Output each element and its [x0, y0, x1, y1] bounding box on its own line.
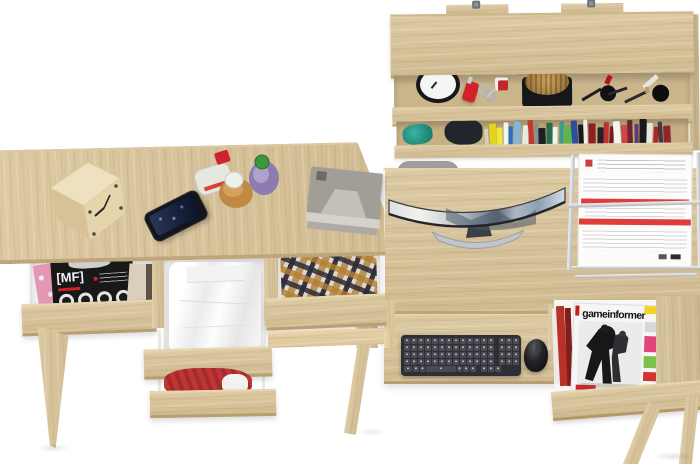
red-key-fob	[495, 77, 508, 90]
invoice-header-text	[597, 160, 685, 173]
keyboard-key	[506, 338, 512, 344]
keyboard-key	[467, 338, 473, 344]
wireless-keyboard	[401, 335, 521, 376]
mounting-hook-icon	[587, 0, 595, 8]
magazine-masthead: gameinformer	[582, 308, 645, 322]
invoice-paper	[578, 154, 693, 269]
keyboard-key	[446, 359, 452, 365]
clock-screw	[88, 210, 92, 214]
keyboard-key	[499, 338, 505, 344]
keyboard-key	[460, 352, 466, 358]
keyboard-key	[446, 338, 452, 344]
keyboard-key	[425, 359, 431, 365]
keyboard-key	[418, 359, 424, 365]
document-tray	[571, 146, 700, 282]
keyboard-key	[506, 359, 512, 365]
clock-screw	[92, 232, 96, 236]
keyboard-key	[457, 366, 462, 372]
organizer-display	[316, 171, 327, 181]
keyboard-key	[499, 352, 505, 358]
keyboard-key	[488, 352, 494, 358]
keyboard-key	[426, 366, 456, 372]
book-spine	[646, 123, 653, 145]
keyboard-key	[411, 359, 417, 365]
cube-clock	[44, 158, 128, 244]
keyboard-key	[453, 359, 459, 365]
keyboard-gap	[495, 338, 498, 344]
keyboard-key	[467, 359, 473, 365]
keyboard-key	[460, 345, 466, 351]
keyboard-key	[488, 345, 494, 351]
keyboard-key	[446, 352, 452, 358]
desk-leg-tapered	[34, 326, 74, 448]
keyboard-key	[481, 366, 487, 372]
mounting-hook-icon	[472, 1, 480, 9]
keyboard-key	[499, 345, 505, 351]
keyboard-key	[467, 352, 473, 358]
mf-cover-text-red	[58, 287, 80, 292]
keyboard-key	[463, 366, 469, 372]
magazine-cover-photo	[577, 321, 643, 391]
shirt-fold-line	[179, 300, 253, 305]
drawer-front-red-garment	[150, 389, 276, 418]
clock-screw	[119, 206, 123, 210]
invoice-table-text	[585, 208, 685, 218]
book-spine	[513, 121, 521, 146]
keyboard-key	[404, 338, 410, 344]
alarm-clock	[416, 72, 460, 103]
keyboard-gap	[495, 352, 498, 358]
invoice-footer-mark	[659, 254, 667, 259]
keyboard-key	[439, 359, 445, 365]
keyboard-key	[499, 359, 505, 365]
keyboard-key	[432, 345, 438, 351]
desk-organizer	[303, 164, 387, 238]
keyboard-key	[488, 366, 494, 372]
invoice-footer-mark	[671, 254, 681, 259]
mf-masthead: [MF]	[56, 269, 84, 286]
keyboard-keys	[404, 338, 521, 372]
keyboard-gap	[495, 359, 498, 365]
keyboard-key	[460, 359, 466, 365]
keyboard-key	[495, 366, 501, 372]
book-spine	[488, 123, 496, 146]
keyboard-key	[488, 359, 494, 365]
lipstick	[604, 75, 612, 85]
curved-monitor	[386, 180, 568, 250]
desk-leg-angled	[344, 344, 370, 435]
invoice-body-text	[583, 179, 687, 196]
powder-brush-head	[652, 85, 669, 102]
keyboard-key	[432, 352, 438, 358]
keyboard-key	[474, 359, 480, 365]
wall-shelf	[382, 0, 700, 166]
keyboard-key	[439, 352, 445, 358]
keyboard-key	[418, 338, 424, 344]
keyboard-gap	[477, 366, 480, 372]
clock-screw	[114, 184, 118, 188]
keyboard-key	[413, 366, 419, 372]
brush-ferrule	[645, 87, 649, 93]
keyboard-key	[418, 345, 424, 351]
keyboard-key	[418, 352, 424, 358]
shelf-top-board	[390, 11, 694, 78]
teal-cloth	[401, 123, 433, 146]
folded-white-shirt	[169, 262, 261, 354]
drawer-front-plaid-shirt	[265, 293, 386, 330]
keyboard-key	[453, 338, 459, 344]
book-spine	[627, 120, 633, 145]
mouse-scroll-line	[535, 342, 538, 351]
keyboard-key	[404, 352, 410, 358]
scene: gameinformer [MF]	[0, 0, 700, 464]
keyboard-row	[404, 352, 521, 358]
book-spine	[639, 119, 646, 145]
book-spine	[613, 121, 622, 145]
keyboard-row	[404, 366, 521, 372]
magazine-spine-mark	[575, 306, 579, 316]
magazine-rack: gameinformer	[550, 294, 700, 424]
keyboard-key	[411, 338, 417, 344]
keyboard-row	[404, 345, 521, 351]
floor-shadow	[356, 428, 388, 436]
keyboard-key	[488, 338, 494, 344]
keyboard-key	[425, 352, 431, 358]
book-spine	[503, 122, 508, 146]
keyboard-key	[513, 359, 519, 365]
brush-handle	[624, 90, 647, 103]
keyboard-key	[425, 338, 431, 344]
keyboard-key	[453, 345, 459, 351]
keyboard-key	[446, 345, 452, 351]
keyboard-key	[474, 352, 480, 358]
keyboard-key	[467, 345, 473, 351]
keyboard-key	[411, 352, 417, 358]
book-spine	[546, 123, 552, 146]
perfume-green-cap	[255, 155, 269, 169]
keyboard-gap	[495, 345, 498, 351]
keyboard-key	[404, 345, 410, 351]
tray-wire-bottom	[571, 266, 700, 269]
floor-shadow	[36, 444, 70, 452]
tray-wire-bottom	[575, 273, 697, 278]
keyboard-key	[439, 345, 445, 351]
keyboard-key	[470, 366, 476, 372]
brush-handle	[581, 88, 601, 102]
keyboard-key	[453, 352, 459, 358]
keyboard-key	[506, 352, 512, 358]
keyboard-key	[474, 338, 480, 344]
keyboard-row	[404, 338, 521, 344]
shirt-collar-fold	[187, 265, 244, 283]
keyboard-key	[513, 352, 519, 358]
invoice-body-text	[583, 231, 687, 252]
invoice-logo	[585, 160, 592, 167]
book-spine	[603, 122, 609, 145]
keyboard-key	[404, 359, 410, 365]
floor-shadow	[652, 452, 696, 461]
mf-cover-text	[99, 272, 128, 283]
keyboard-key	[513, 338, 519, 344]
invoice-red-band	[579, 219, 691, 226]
keyboard-key	[425, 345, 431, 351]
keyboard-key	[481, 352, 487, 358]
keyboard-row	[404, 359, 521, 365]
keyboard-key	[513, 345, 519, 351]
keyboard-key	[404, 366, 412, 372]
keyboard-key	[432, 338, 438, 344]
keyboard-key	[506, 345, 512, 351]
keyboard-key	[420, 366, 425, 372]
keyboard-key	[481, 338, 487, 344]
keyboard-key	[439, 338, 445, 344]
keyboard-key	[411, 345, 417, 351]
keyboard-key	[474, 345, 480, 351]
mf-red-dot	[93, 277, 97, 281]
drawer-box-white-shirt	[164, 256, 266, 358]
keyboard-key	[432, 359, 438, 365]
black-pouch	[444, 119, 482, 145]
tray-wire-right	[696, 152, 700, 268]
perfume-white-cap	[225, 172, 243, 188]
keyboard-key	[481, 345, 487, 351]
shirt-fold-line	[183, 325, 249, 328]
book-spine	[634, 124, 638, 145]
keyboard-key	[460, 338, 466, 344]
keyboard-key	[481, 359, 487, 365]
perfume-set	[192, 150, 282, 212]
book-spine	[588, 123, 595, 145]
